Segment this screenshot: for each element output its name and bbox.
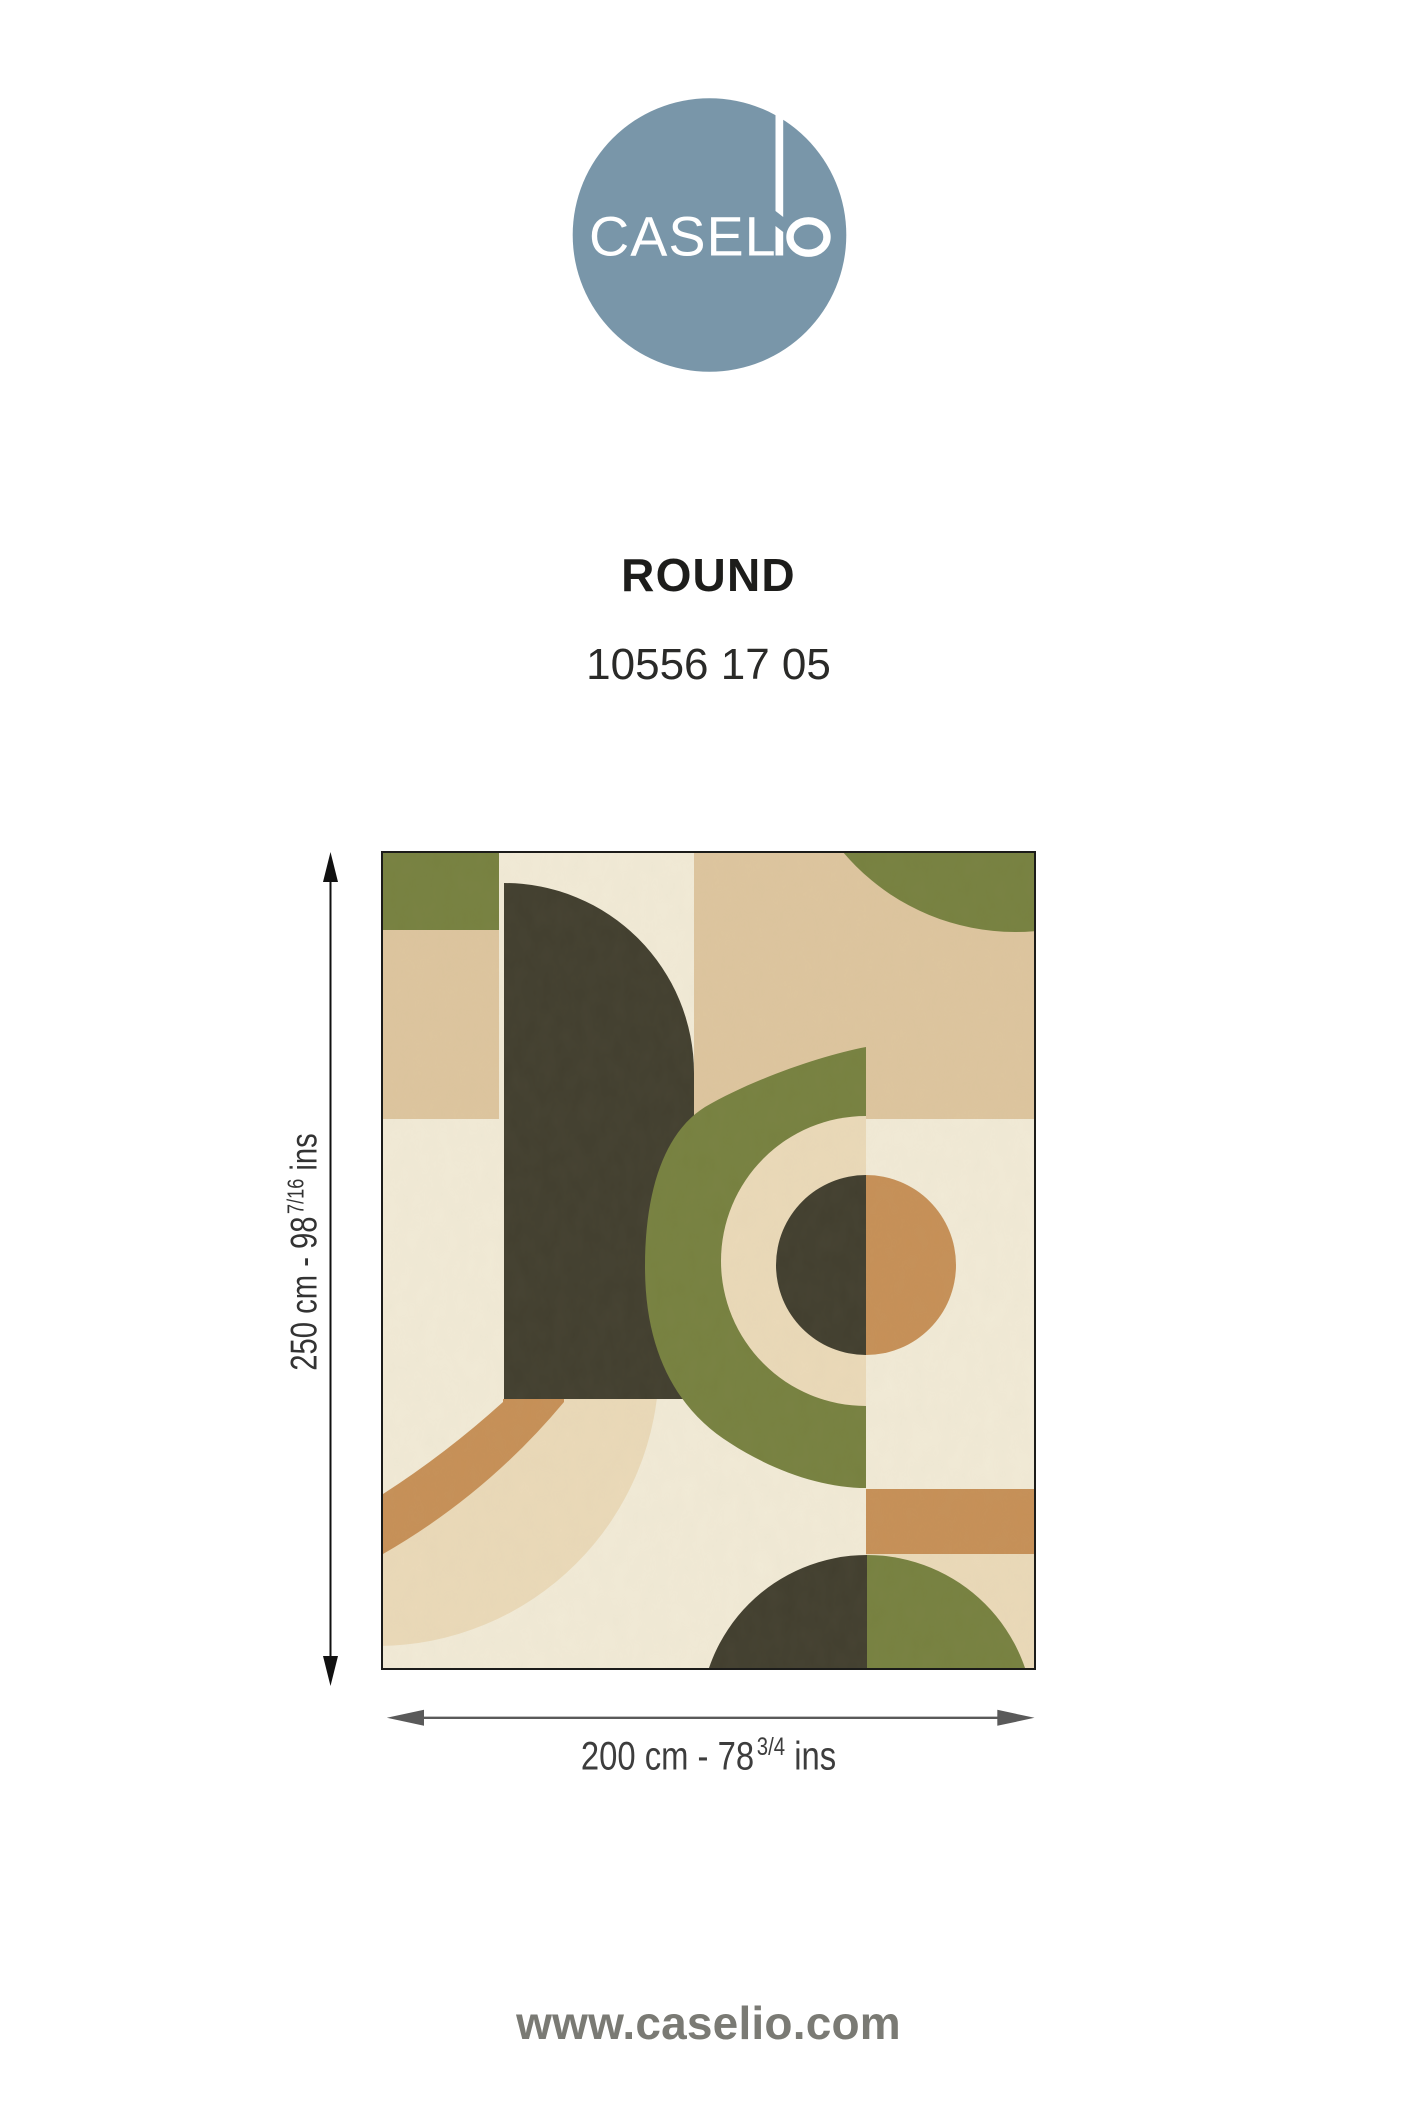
svg-text:CASEL: CASEL — [589, 206, 777, 268]
